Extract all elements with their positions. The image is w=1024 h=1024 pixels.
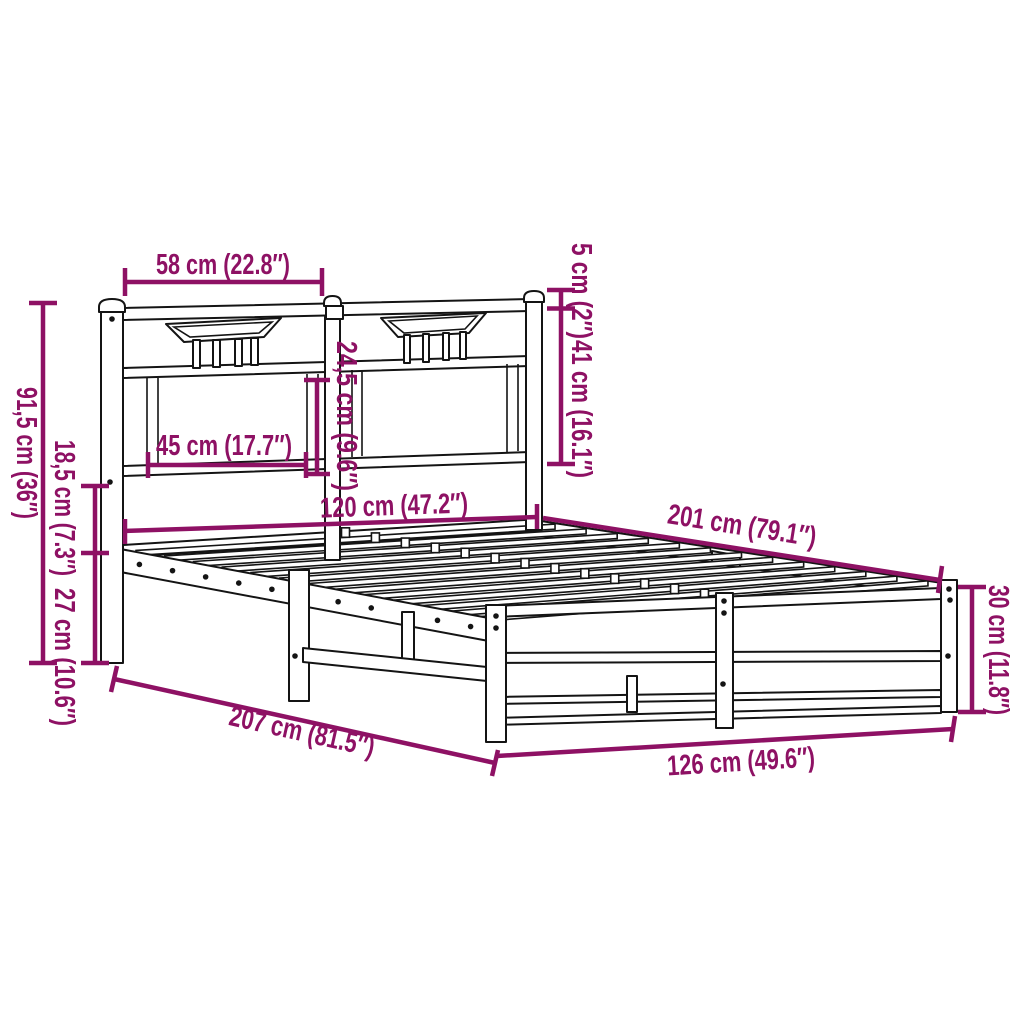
- dimension-label: 58 cm (22.8″): [156, 249, 290, 281]
- dimension-label: 30 cm (11.8″): [982, 585, 1014, 715]
- rivet: [236, 580, 242, 586]
- dimension-label: 24,5 cm (9.6″): [330, 341, 362, 491]
- dimension-tick: [111, 666, 117, 692]
- rivet: [109, 316, 115, 322]
- dimension-label: 45 cm (17.7″): [156, 430, 292, 462]
- rivet: [292, 653, 298, 659]
- dimension-label: 27 cm (10.6″): [48, 588, 80, 726]
- slat-clip: [641, 579, 649, 589]
- footboard-brace: [627, 676, 637, 712]
- dimension-5-41: 5 cm (2″) 41 cm (16.1″): [547, 243, 597, 478]
- rivet: [493, 613, 499, 619]
- longitudinal-brace: [303, 648, 487, 681]
- slat-clip: [342, 528, 350, 538]
- headboard-decor-left: [166, 318, 281, 368]
- rivet: [203, 574, 209, 580]
- rivet: [468, 624, 474, 630]
- dimension-58: 58 cm (22.8″): [125, 249, 322, 296]
- rivet: [170, 568, 176, 574]
- slat-clip: [551, 564, 559, 574]
- footboard: [486, 580, 957, 742]
- diagram-canvas: 58 cm (22.8″) 5 cm (2″) 41 cm (16.1″) 24…: [0, 0, 1024, 1024]
- decor-bar: [423, 334, 429, 362]
- headboard-post-center-cap: [324, 296, 341, 306]
- decor-bar: [404, 335, 410, 363]
- rivet: [947, 597, 953, 603]
- slat-clip: [461, 548, 469, 558]
- support-leg-front: [289, 570, 309, 701]
- dimension-label: 18,5 cm (7.3″): [48, 440, 80, 576]
- dimension-label: 41 cm (16.1″): [565, 340, 597, 478]
- headboard-decor-right: [381, 313, 486, 363]
- rivet: [721, 610, 727, 616]
- slat-clip: [521, 559, 529, 569]
- decor-bar: [443, 333, 449, 360]
- decor-bar: [213, 340, 220, 367]
- headboard-post-right-cap: [524, 291, 544, 302]
- dimension-label: 126 cm (49.6″): [666, 742, 816, 783]
- support-leg-rear: [402, 612, 414, 664]
- rivet: [269, 586, 275, 592]
- slat-clip: [371, 533, 379, 543]
- decor-bar: [193, 340, 200, 368]
- rivet: [946, 586, 952, 592]
- headboard-post-center-collar: [326, 306, 343, 319]
- rivet: [945, 653, 951, 659]
- bed-frame-dimension-diagram: 58 cm (22.8″) 5 cm (2″) 41 cm (16.1″) 24…: [0, 0, 1024, 1024]
- slat-clip: [671, 584, 679, 594]
- rivet: [335, 599, 341, 605]
- bed-platform: [115, 519, 942, 642]
- dimension-18-5-27: 18,5 cm (7.3″) 27 cm (10.6″): [48, 440, 109, 726]
- rivet: [368, 605, 374, 611]
- slat-clip: [431, 543, 439, 553]
- rivet: [137, 562, 143, 568]
- slat-clip: [401, 538, 409, 548]
- dimension-label: 91,5 cm (36″): [10, 387, 42, 519]
- rivet: [435, 618, 441, 624]
- headboard-post-right: [526, 302, 542, 530]
- headboard-post-left-cap: [99, 299, 125, 312]
- decor-bar: [460, 332, 466, 359]
- decor-bar: [235, 339, 242, 366]
- dimension-label: 207 cm (81.5″): [226, 700, 377, 763]
- dimension-label: 5 cm (2″): [565, 243, 597, 339]
- slat-clip: [491, 553, 499, 563]
- decor-bar: [251, 338, 258, 365]
- dimension-label: 120 cm (47.2″): [319, 487, 468, 524]
- slat-clip: [581, 569, 589, 579]
- dimension-30: 30 cm (11.8″): [958, 585, 1014, 715]
- rivet: [493, 625, 499, 631]
- rivet: [721, 598, 727, 604]
- rivet: [720, 681, 726, 687]
- slat-clip: [611, 574, 619, 584]
- dimension-tick: [951, 716, 955, 742]
